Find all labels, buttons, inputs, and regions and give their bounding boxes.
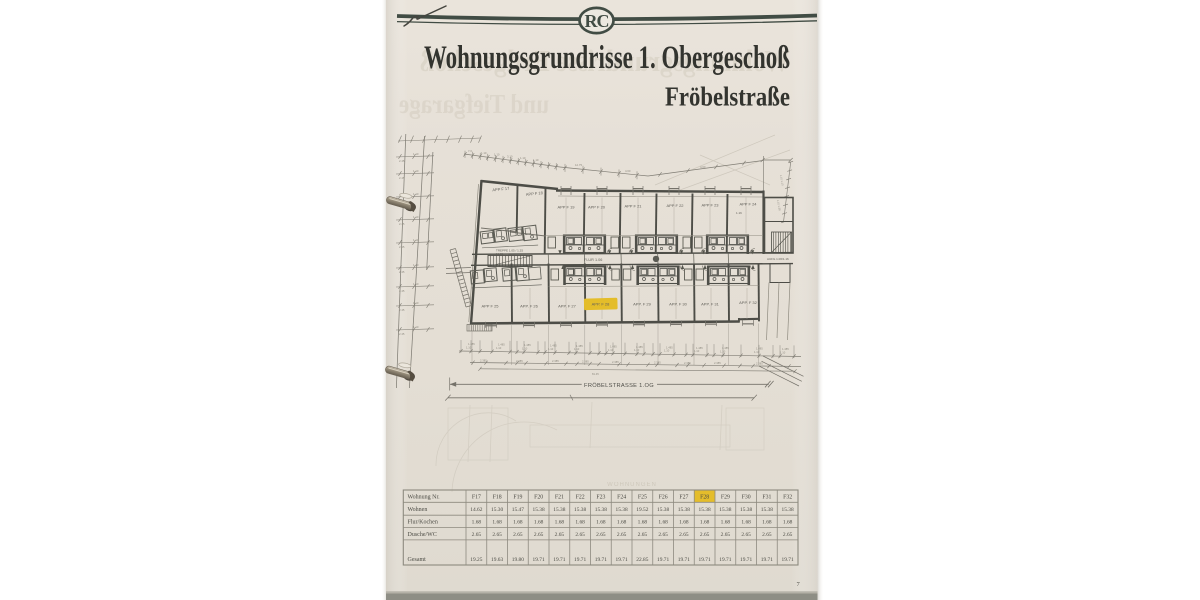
svg-text:1.68: 1.68 [596, 520, 606, 526]
svg-text:APP F 23: APP F 23 [701, 203, 719, 208]
svg-text:APP F 21: APP F 21 [624, 204, 642, 209]
svg-text:19.71: 19.71 [678, 557, 690, 563]
svg-text:15.38: 15.38 [761, 507, 773, 513]
svg-text:FRÖBELSTRASSE 1.OG: FRÖBELSTRASSE 1.OG [584, 382, 654, 389]
svg-text:2.385: 2.385 [684, 361, 691, 365]
svg-text:15.38: 15.38 [678, 507, 690, 513]
svg-text:1.68: 1.68 [492, 520, 502, 526]
svg-text:F21: F21 [555, 495, 564, 501]
svg-text:und Tiefgarage: und Tiefgarage [399, 89, 549, 119]
svg-text:1.68: 1.68 [658, 520, 668, 526]
svg-text:APP. F 32: APP. F 32 [739, 300, 757, 305]
svg-text:19.71: 19.71 [719, 557, 731, 563]
svg-text:2.45: 2.45 [399, 222, 405, 226]
svg-text:15.38: 15.38 [616, 507, 628, 513]
svg-text:15.47: 15.47 [512, 507, 524, 513]
svg-text:F17: F17 [472, 495, 481, 501]
svg-text:1.485: 1.485 [610, 344, 617, 348]
svg-text:1.485: 1.485 [498, 343, 505, 347]
svg-text:2.45: 2.45 [399, 308, 405, 312]
svg-text:2.65: 2.65 [513, 532, 523, 538]
svg-text:Gesamt: Gesamt [408, 557, 427, 563]
svg-text:1.10: 1.10 [413, 152, 419, 156]
svg-text:1.10: 1.10 [413, 325, 419, 329]
svg-text:F27: F27 [679, 495, 688, 501]
svg-text:2.65: 2.65 [658, 532, 668, 538]
svg-text:FLUR 1.06: FLUR 1.06 [584, 258, 602, 262]
svg-text:1.68: 1.68 [555, 520, 565, 526]
svg-text:15.38: 15.38 [533, 507, 545, 513]
svg-text:1.68: 1.68 [679, 520, 689, 526]
svg-text:F22: F22 [576, 495, 585, 501]
svg-text:15.38: 15.38 [782, 507, 794, 513]
svg-text:1.485: 1.485 [666, 345, 673, 349]
svg-text:2.65: 2.65 [700, 532, 710, 538]
svg-text:F20: F20 [534, 495, 543, 501]
svg-text:19.71: 19.71 [595, 557, 607, 563]
svg-text:APP. F 29: APP. F 29 [633, 302, 651, 307]
svg-text:12.75: 12.75 [575, 163, 582, 167]
svg-text:APP F 25: APP F 25 [481, 304, 499, 309]
svg-text:APP F 19: APP F 19 [557, 205, 575, 210]
svg-text:1.485: 1.485 [696, 346, 703, 350]
svg-text:1.68: 1.68 [741, 520, 751, 526]
svg-text:1.485: 1.485 [576, 344, 583, 348]
svg-text:1.68: 1.68 [638, 520, 648, 526]
svg-text:2.65: 2.65 [492, 532, 502, 538]
svg-text:1.485: 1.485 [756, 347, 763, 351]
svg-text:2.45: 2.45 [399, 270, 405, 274]
svg-text:19.71: 19.71 [782, 557, 794, 563]
svg-text:Wohnung Nr.: Wohnung Nr. [408, 495, 441, 501]
svg-text:2.45: 2.45 [399, 332, 405, 336]
svg-text:1.10: 1.10 [413, 282, 419, 286]
svg-text:F32: F32 [783, 495, 792, 501]
svg-text:2.385: 2.385 [552, 359, 559, 363]
svg-text:19.71: 19.71 [616, 557, 628, 563]
svg-text:1.485: 1.485 [636, 345, 643, 349]
svg-text:F19: F19 [513, 495, 522, 501]
svg-text:APP F 22: APP F 22 [666, 203, 684, 208]
svg-text:2.65: 2.65 [638, 532, 648, 538]
svg-text:F18: F18 [493, 495, 502, 501]
svg-text:4.60: 4.60 [625, 169, 631, 173]
svg-text:2.65: 2.65 [534, 532, 544, 538]
svg-text:19.25: 19.25 [470, 557, 482, 563]
svg-text:Dusche/WC: Dusche/WC [408, 532, 437, 538]
svg-text:19.52: 19.52 [636, 507, 648, 513]
svg-text:F26: F26 [659, 495, 668, 501]
svg-text:2.65: 2.65 [596, 532, 606, 538]
svg-text:1.10: 1.10 [413, 301, 419, 305]
svg-text:19.80: 19.80 [512, 557, 524, 563]
svg-text:1.68: 1.68 [472, 520, 482, 526]
svg-text:1.10: 1.10 [413, 192, 419, 196]
svg-text:1.485: 1.485 [550, 343, 557, 347]
svg-text:APP. F 31: APP. F 31 [701, 302, 719, 307]
svg-text:2.385: 2.385 [480, 358, 487, 362]
svg-text:2.45: 2.45 [399, 289, 405, 293]
svg-text:1.68: 1.68 [721, 520, 731, 526]
svg-text:2.65: 2.65 [472, 532, 482, 538]
svg-text:2.45: 2.45 [399, 176, 405, 180]
svg-text:F28: F28 [700, 495, 709, 501]
svg-text:19.71: 19.71 [740, 557, 752, 563]
svg-text:APP. F 30: APP. F 30 [669, 302, 687, 307]
svg-text:19.71: 19.71 [533, 557, 545, 563]
svg-text:15.30: 15.30 [491, 507, 503, 513]
svg-text:15.38: 15.38 [719, 507, 731, 513]
svg-text:1.10: 1.10 [520, 156, 526, 160]
svg-text:APP. F 26: APP. F 26 [520, 304, 538, 309]
svg-text:3.10: 3.10 [507, 154, 513, 158]
svg-text:1.10: 1.10 [533, 158, 539, 162]
svg-text:F29: F29 [721, 495, 730, 501]
svg-text:1.68: 1.68 [513, 520, 523, 526]
svg-text:Fröbelstraße: Fröbelstraße [665, 82, 790, 112]
svg-text:15.38: 15.38 [657, 507, 669, 513]
svg-text:APP F 24: APP F 24 [739, 202, 757, 207]
svg-text:22.85: 22.85 [636, 557, 648, 563]
svg-text:1.10: 1.10 [413, 215, 419, 219]
svg-text:19.71: 19.71 [761, 557, 773, 563]
svg-text:7.0: 7.0 [468, 149, 472, 153]
svg-text:19.71: 19.71 [657, 557, 669, 563]
svg-text:APP. F 27: APP. F 27 [558, 304, 576, 309]
svg-text:19.63: 19.63 [491, 557, 503, 563]
svg-text:16.05: 16.05 [496, 252, 503, 256]
svg-text:AUFG 1.06/1.16: AUFG 1.06/1.16 [767, 257, 789, 261]
svg-text:1.68: 1.68 [783, 520, 793, 526]
svg-text:19.71: 19.71 [553, 557, 565, 563]
svg-text:1.16: 1.16 [736, 211, 742, 215]
svg-text:Wohnungsgrundrisse 1. Obergesc: Wohnungsgrundrisse 1. Obergeschoß [424, 40, 790, 76]
svg-text:1.10: 1.10 [413, 238, 419, 242]
svg-text:2.385: 2.385 [516, 359, 523, 363]
svg-text:Wohnen: Wohnen [408, 507, 428, 513]
svg-text:2.65: 2.65 [721, 532, 731, 538]
svg-text:1.10: 1.10 [481, 151, 487, 155]
svg-text:19.71: 19.71 [574, 557, 586, 563]
svg-text:F24: F24 [617, 495, 626, 501]
svg-text:1.485: 1.485 [468, 342, 475, 346]
svg-text:15.38: 15.38 [553, 507, 565, 513]
svg-text:4.60: 4.60 [700, 165, 706, 169]
svg-text:2.45: 2.45 [399, 245, 405, 249]
svg-text:2.65: 2.65 [575, 532, 585, 538]
svg-text:2.385: 2.385 [654, 360, 661, 364]
svg-text:2.385: 2.385 [582, 360, 589, 364]
svg-text:2.65: 2.65 [783, 532, 793, 538]
svg-text:WOHNUNGEN: WOHNUNGEN [607, 482, 657, 488]
svg-text:2.385: 2.385 [714, 361, 721, 365]
svg-text:F25: F25 [638, 495, 647, 501]
svg-text:19.71: 19.71 [699, 557, 711, 563]
svg-text:14.62: 14.62 [470, 507, 482, 513]
svg-text:2.65: 2.65 [617, 532, 627, 538]
svg-text:Flur/Kochen: Flur/Kochen [408, 520, 438, 526]
svg-text:1.68: 1.68 [534, 520, 544, 526]
svg-text:C: C [597, 11, 610, 31]
svg-text:81.45: 81.45 [592, 372, 599, 376]
svg-text:APP. F 28: APP. F 28 [592, 302, 610, 307]
svg-text:F23: F23 [596, 495, 605, 501]
svg-text:2.65: 2.65 [762, 532, 772, 538]
svg-text:1.485: 1.485 [524, 343, 531, 347]
svg-text:1.485: 1.485 [722, 346, 729, 350]
svg-text:2.385: 2.385 [756, 362, 763, 366]
svg-text:2.65: 2.65 [679, 532, 689, 538]
svg-text:2.65: 2.65 [555, 532, 565, 538]
svg-text:15.38: 15.38 [740, 507, 752, 513]
svg-text:15.38: 15.38 [595, 507, 607, 513]
svg-text:1.10: 1.10 [413, 169, 419, 173]
svg-text:2.385: 2.385 [612, 360, 619, 364]
svg-text:F30: F30 [742, 495, 751, 501]
svg-text:1.10: 1.10 [413, 263, 419, 267]
svg-text:1.68: 1.68 [575, 520, 585, 526]
svg-text:15.38: 15.38 [699, 507, 711, 513]
svg-text:F31: F31 [762, 495, 771, 501]
svg-text:1.68: 1.68 [700, 520, 710, 526]
svg-text:APP F 20: APP F 20 [588, 205, 606, 210]
svg-text:1.68: 1.68 [617, 520, 627, 526]
svg-text:15.38: 15.38 [574, 507, 586, 513]
svg-text:1.485: 1.485 [782, 347, 789, 351]
svg-text:1.68: 1.68 [762, 520, 772, 526]
svg-text:2.65: 2.65 [741, 532, 751, 538]
svg-text:2.45: 2.45 [399, 159, 405, 163]
svg-text:1.10: 1.10 [494, 153, 500, 157]
